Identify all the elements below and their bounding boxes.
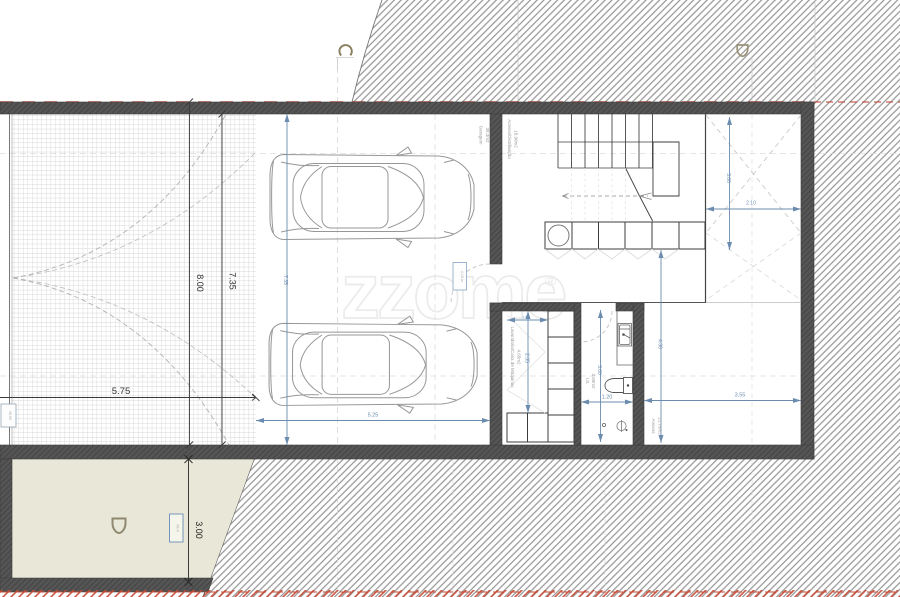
- svg-text:5.25: 5.25: [368, 413, 379, 419]
- svg-text:zzome: zzome: [341, 247, 565, 335]
- svg-text:8.00: 8.00: [195, 274, 205, 292]
- svg-text:4.65m2: 4.65m2: [517, 349, 522, 365]
- svg-text:38.3m2: 38.3m2: [485, 127, 490, 143]
- svg-text:18.90m2: 18.90m2: [514, 130, 519, 148]
- svg-text:3.00: 3.00: [194, 521, 204, 539]
- svg-text:Acesso/Distribuição: Acesso/Distribuição: [507, 119, 512, 159]
- svg-text:1.05: 1.05: [522, 315, 531, 320]
- svg-text:3.55: 3.55: [735, 393, 746, 399]
- svg-text:Anexos: Anexos: [651, 418, 656, 434]
- svg-text:7.35: 7.35: [282, 275, 288, 285]
- svg-text:Garagem: Garagem: [479, 126, 484, 145]
- svg-text:Lavandaria/Casa de Máquinas: Lavandaria/Casa de Máquinas: [510, 326, 515, 388]
- svg-text:4.30: 4.30: [657, 339, 663, 349]
- svg-text:48.4: 48.4: [176, 524, 180, 531]
- svg-text:21.75m2: 21.75m2: [658, 417, 663, 435]
- svg-text:4.15 m: 4.15 m: [460, 271, 464, 283]
- svg-text:®: ®: [545, 273, 556, 290]
- svg-text:2.35: 2.35: [524, 353, 530, 363]
- svg-text:3.60m2: 3.60m2: [591, 373, 596, 389]
- svg-text:I.S.: I.S.: [585, 378, 590, 385]
- svg-text:3.00: 3.00: [725, 173, 731, 183]
- svg-text:5.75: 5.75: [112, 386, 131, 397]
- svg-text:48.00: 48.00: [8, 411, 12, 421]
- svg-text:7.35: 7.35: [228, 272, 238, 290]
- svg-text:2.10: 2.10: [746, 201, 756, 207]
- svg-text:1.20: 1.20: [602, 395, 613, 401]
